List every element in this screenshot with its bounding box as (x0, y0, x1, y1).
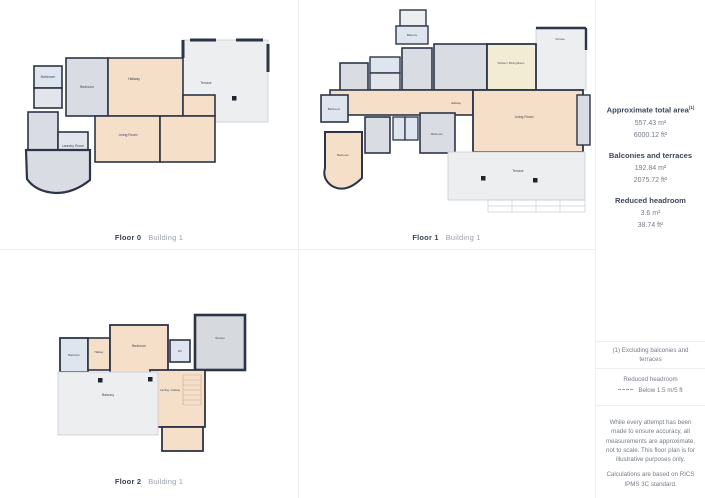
room-living-room (95, 116, 160, 162)
floor-2-cell: Terrace Bathroom Hallway Bedroom WC Land… (0, 249, 298, 498)
floorplan-page: Terrace Bathroom Bedroom Hallway Living … (0, 0, 705, 498)
room-label: Living Room (119, 133, 138, 137)
room-bedroom-bay (324, 132, 362, 189)
dashed-line-icon (618, 389, 633, 390)
room-gray-left (28, 112, 58, 150)
room-label: Terrace (512, 169, 523, 173)
column-marker (533, 178, 538, 183)
room-label: Bedroom (337, 153, 349, 157)
room-gray-mid (434, 44, 487, 90)
standard-note: Calculations are based on RICS IPMS 3C s… (596, 470, 705, 489)
disclaimer-box: While every attempt has been made to ens… (596, 406, 705, 498)
total-area-ft2: 6000.12 ft² (596, 130, 705, 142)
room-bedroom-upper (402, 48, 432, 90)
room-terrace (195, 315, 245, 370)
building-name: Building 1 (148, 233, 183, 242)
headroom-ft2: 38.74 ft² (596, 220, 705, 232)
floor-0-plan: Terrace Bathroom Bedroom Hallway Living … (0, 0, 298, 249)
floor-name: Floor 2 (115, 477, 141, 486)
floor-0-caption: Floor 0Building 1 (0, 233, 298, 242)
room-label: Terrace (215, 336, 225, 340)
summary-sidebar: Approximate total area(1) 557.43 m² 6000… (595, 0, 705, 498)
room-label: Kitchen / Dining Room (498, 61, 525, 65)
room-label: Bathroom (68, 353, 80, 357)
room-peach-nub (183, 95, 215, 116)
headroom-title: Reduced headroom (596, 196, 705, 205)
room-blue-small (370, 57, 400, 73)
floor-name: Floor 0 (115, 233, 141, 242)
legend-label: Below 1.5 m/5 ft (638, 387, 682, 394)
total-area-title-text: Approximate total area (607, 106, 689, 115)
room-label: Terrace (555, 37, 565, 41)
room-gray-small (370, 73, 400, 90)
room-balcony-upper (400, 10, 426, 26)
building-name: Building 1 (446, 233, 481, 242)
room-gray-bedroom1 (365, 117, 390, 153)
room-label: WC (178, 349, 183, 353)
legend-box: Reduced headroom Below 1.5 m/5 ft (596, 369, 705, 406)
room-label: Terrace (200, 81, 211, 85)
room-label: Bedroom (132, 344, 146, 348)
room-label: Landing / Hallway (160, 388, 181, 392)
room-ensuite2 (405, 117, 418, 140)
room-peach-right (160, 116, 215, 162)
exclusion-note-box: (1) Excluding balconies and terraces (596, 342, 705, 369)
room-right-protrusion (577, 95, 590, 145)
room-label: Living Room (515, 115, 534, 119)
room-ensuite1 (393, 117, 405, 140)
terrace-steps (488, 200, 585, 212)
balconies-ft2: 2075.72 ft² (596, 175, 705, 187)
room-balcony (58, 372, 158, 435)
column-marker (232, 96, 237, 101)
floor-0-cell: Terrace Bathroom Bedroom Hallway Living … (0, 0, 298, 249)
total-area-footnote-marker: (1) (689, 105, 695, 110)
legend-row: Below 1.5 m/5 ft (596, 386, 705, 395)
floor-2-caption: Floor 2Building 1 (0, 477, 298, 486)
room-label: Bedroom (431, 132, 443, 136)
room-bedroom (110, 325, 168, 375)
building-name: Building 1 (148, 477, 183, 486)
room-label: Bathroom (41, 75, 56, 79)
exclusion-note: (1) Excluding balconies and terraces (596, 346, 705, 365)
room-label: Hallway (95, 351, 105, 354)
column-marker (481, 176, 486, 181)
floor-1-cell: Balcony Terrace Kitchen / Dining Room Ha… (298, 0, 595, 249)
room-label: Bedroom (80, 85, 94, 89)
total-area-m2: 557.43 m² (596, 118, 705, 130)
balconies-m2: 192.84 m² (596, 163, 705, 175)
room-label: Laundry Room (62, 144, 84, 148)
room-gray-upper-left (340, 63, 368, 93)
room-label: Balcony (407, 33, 418, 37)
total-area-title: Approximate total area(1) (596, 105, 705, 115)
area-summary-box: Approximate total area(1) 557.43 m² 6000… (596, 0, 705, 342)
legend-title: Reduced headroom (596, 375, 705, 384)
floor-name: Floor 1 (412, 233, 438, 242)
column-marker (148, 377, 153, 382)
room-living-room (473, 90, 583, 152)
floor-1-plan: Balcony Terrace Kitchen / Dining Room Ha… (298, 0, 595, 249)
floor-2-plan: Terrace Bathroom Hallway Bedroom WC Land… (0, 249, 298, 498)
column-marker (98, 378, 103, 383)
floor-1-caption: Floor 1Building 1 (298, 233, 595, 242)
room-turret (26, 150, 90, 193)
room-hallway (88, 338, 110, 370)
headroom-m2: 3.6 m² (596, 208, 705, 220)
room-label: Balcony (102, 393, 114, 397)
room-label: Hallway (451, 101, 462, 105)
room-small (34, 88, 62, 108)
room-landing-ext (162, 427, 203, 451)
balconies-title: Balconies and terraces (596, 151, 705, 160)
room-label: Hallway (128, 77, 140, 81)
disclaimer-text: While every attempt has been made to ens… (596, 418, 705, 464)
room-label: Bathroom (328, 107, 341, 111)
room-hallway (108, 58, 183, 116)
room-kitchen (487, 44, 536, 90)
room-terrace-main (448, 152, 585, 200)
